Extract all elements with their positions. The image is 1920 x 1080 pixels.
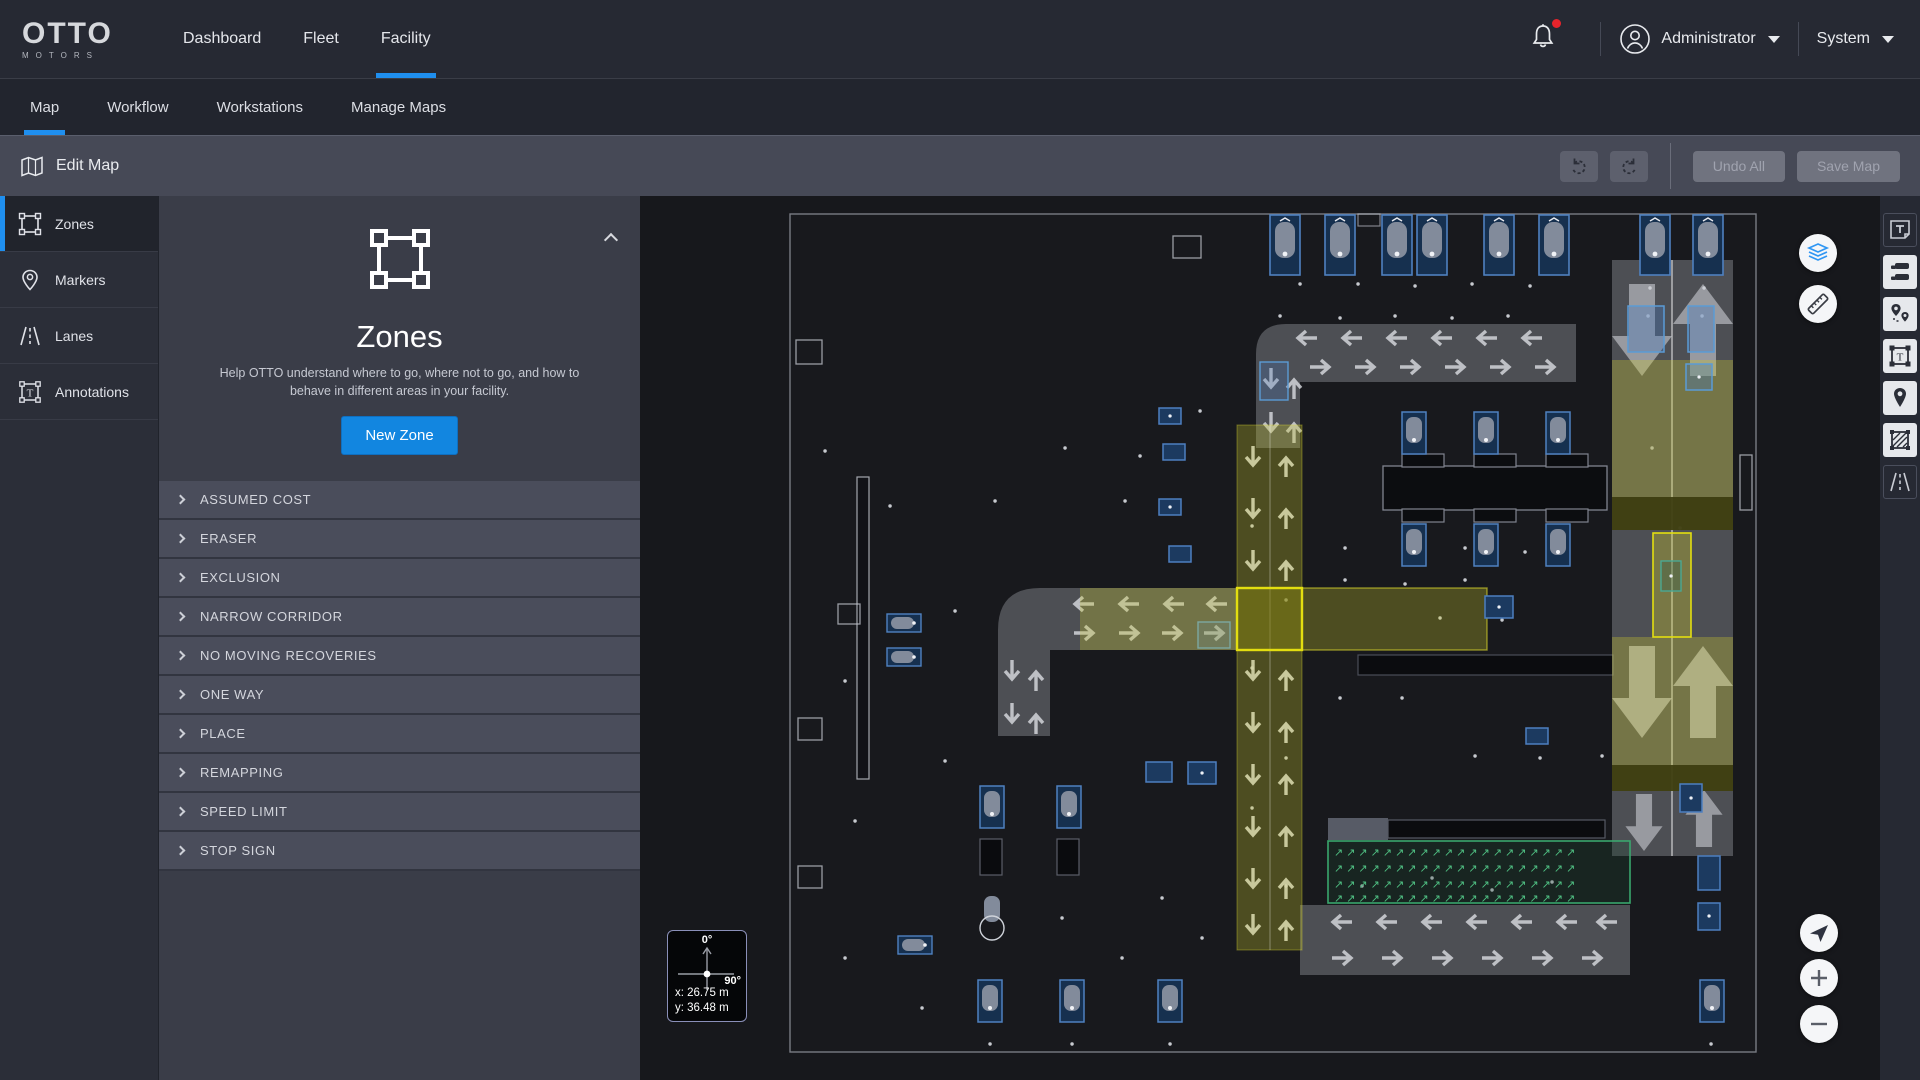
map-edit-toolbar-right: T — [1880, 196, 1920, 1080]
marker-icon — [18, 268, 42, 292]
sidebar-item-markers[interactable]: Markers — [0, 252, 158, 308]
main-nav-item[interactable]: Dashboard — [162, 0, 282, 78]
main-nav-item[interactable]: Facility — [360, 0, 452, 78]
green-zone[interactable]: ↗↗↗↗↗↗↗↗↗↗↗↗↗↗↗↗↗↗↗↗ ↗↗↗↗↗↗↗↗↗↗↗↗↗↗↗↗↗↗↗… — [1328, 841, 1630, 905]
sidebar-item-label: Annotations — [55, 384, 129, 400]
ruler-icon — [1805, 291, 1831, 317]
text-note-tool-button[interactable] — [1883, 213, 1917, 247]
sidebar-item-annotations[interactable]: T Annotations — [0, 364, 158, 420]
zone-type-row[interactable]: ERASER — [159, 520, 640, 559]
minus-icon — [1808, 1013, 1830, 1035]
measure-button[interactable] — [1799, 285, 1837, 323]
logo-text: OTTO — [22, 19, 132, 49]
direction-glyph-row: ↗↗↗↗↗↗↗↗↗↗↗↗↗↗↗↗↗↗↗↗ — [1334, 863, 1578, 875]
notifications-button[interactable] — [1530, 23, 1556, 56]
lanes-icon — [18, 324, 42, 348]
annotation-frame-icon: T — [1887, 343, 1913, 369]
chevron-right-icon — [176, 495, 186, 505]
cursor-y-coordinate: y: 36.48 m — [675, 1001, 729, 1017]
facility-subnav: MapWorkflowWorkstationsManage Maps — [0, 78, 1920, 135]
lanes-tool-button[interactable] — [1883, 465, 1917, 499]
locate-button[interactable] — [1800, 914, 1838, 952]
facility-map-svg[interactable]: ↗↗↗↗↗↗↗↗↗↗↗↗↗↗↗↗↗↗↗↗ ↗↗↗↗↗↗↗↗↗↗↗↗↗↗↗↗↗↗↗… — [640, 196, 1880, 1080]
user-menu[interactable]: Administrator — [1619, 23, 1779, 55]
zoom-in-button[interactable] — [1800, 959, 1838, 997]
chevron-right-icon — [176, 573, 186, 583]
avatar-icon — [1619, 23, 1651, 55]
chevron-right-icon — [176, 807, 186, 817]
subnav-tab[interactable]: Workflow — [83, 79, 192, 135]
undo-all-button[interactable]: Undo All — [1693, 151, 1785, 182]
map-tools-sidebar: Zones Markers Lanes — [0, 196, 159, 1080]
zone-type-row[interactable]: SPEED LIMIT — [159, 793, 640, 832]
zone-type-label: STOP SIGN — [200, 843, 276, 858]
zone-type-row[interactable]: ASSUMED COST — [159, 481, 640, 520]
zone-type-label: ASSUMED COST — [200, 492, 311, 507]
compass-0-label: 0° — [668, 934, 746, 946]
chevron-right-icon — [176, 651, 186, 661]
markers-pair-icon — [1887, 301, 1913, 327]
layers-icon — [1806, 241, 1830, 265]
top-nav-bar: OTTO MOTORS DashboardFleetFacility — [0, 0, 1920, 78]
zone-type-label: PLACE — [200, 726, 246, 741]
save-map-button[interactable]: Save Map — [1797, 151, 1900, 182]
sidebar-item-zones[interactable]: Zones — [0, 196, 158, 252]
direction-glyph-row: ↗↗↗↗↗↗↗↗↗↗↗↗↗↗↗↗↗↗↗↗ — [1334, 879, 1578, 891]
otto-app: OTTO MOTORS DashboardFleetFacility — [0, 0, 1920, 1080]
zone-type-label: REMAPPING — [200, 765, 283, 780]
panel-description: Help OTTO understand where to go, where … — [214, 364, 586, 400]
main-nav-item[interactable]: Fleet — [282, 0, 360, 78]
logo-subtext: MOTORS — [22, 51, 132, 60]
annotations-icon: T — [18, 380, 42, 404]
notification-badge — [1552, 19, 1561, 28]
navigation-arrow-icon — [1807, 921, 1831, 945]
chevron-up-icon — [604, 233, 618, 247]
user-name: Administrator — [1661, 30, 1755, 48]
divider — [1600, 22, 1601, 56]
direction-glyph-row: ↗↗↗↗↗↗↗↗↗↗↗↗↗↗↗↗↗↗↗↗ — [1334, 847, 1578, 859]
topbar-right: Administrator System — [1530, 0, 1920, 78]
zone-type-row[interactable]: PLACE — [159, 715, 640, 754]
chevron-right-icon — [176, 768, 186, 778]
divider — [1798, 22, 1799, 56]
panel-title: Zones — [159, 319, 640, 355]
rack-structure — [1383, 454, 1607, 522]
wall-segment — [857, 477, 869, 779]
zone-hatch-icon — [1887, 427, 1913, 453]
subnav-tab[interactable]: Manage Maps — [327, 79, 470, 135]
sidebar-item-label: Zones — [55, 216, 94, 232]
chevron-right-icon — [176, 729, 186, 739]
redo-button[interactable] — [1610, 151, 1648, 182]
cursor-x-coordinate: x: 26.75 m — [675, 986, 729, 1002]
divider — [1670, 143, 1671, 189]
zone-type-label: SPEED LIMIT — [200, 804, 288, 819]
zone-tool-button[interactable] — [1883, 423, 1917, 457]
plus-icon — [1808, 967, 1830, 989]
zone-type-label: EXCLUSION — [200, 570, 281, 585]
system-menu[interactable]: System — [1817, 30, 1894, 48]
fleet-robots-tool-button[interactable] — [1883, 255, 1917, 289]
subnav-tab[interactable]: Map — [6, 79, 83, 135]
collapse-panel-button[interactable] — [606, 232, 616, 250]
undo-icon — [1569, 156, 1589, 176]
compass-widget: 0° 90° x: 26.75 m y: 36.48 m — [667, 930, 747, 1022]
layers-button[interactable] — [1799, 234, 1837, 272]
undo-button[interactable] — [1560, 151, 1598, 182]
svg-text:T: T — [1897, 352, 1904, 364]
subnav-tab[interactable]: Workstations — [193, 79, 327, 135]
zone-type-row[interactable]: NARROW CORRIDOR — [159, 598, 640, 637]
edit-map-toolbar: Edit Map Undo All Save Map — [0, 135, 1920, 196]
zone-type-label: ERASER — [200, 531, 257, 546]
annotation-frame-tool-button[interactable]: T — [1883, 339, 1917, 373]
edit-map-controls: Undo All Save Map — [1548, 143, 1920, 189]
zone-type-row[interactable]: EXCLUSION — [159, 559, 640, 598]
content: Zones Markers Lanes — [0, 196, 1920, 1080]
zones-large-icon — [367, 226, 433, 292]
map-icon — [20, 156, 44, 177]
zone-type-row[interactable]: ONE WAY — [159, 676, 640, 715]
svg-text:T: T — [27, 387, 34, 399]
system-label: System — [1817, 30, 1870, 48]
facility-map[interactable]: ↗↗↗↗↗↗↗↗↗↗↗↗↗↗↗↗↗↗↗↗ ↗↗↗↗↗↗↗↗↗↗↗↗↗↗↗↗↗↗↗… — [640, 196, 1880, 1080]
zone-type-label: ONE WAY — [200, 687, 264, 702]
sidebar-item-lanes[interactable]: Lanes — [0, 308, 158, 364]
zone-type-label: NARROW CORRIDOR — [200, 609, 343, 624]
chevron-right-icon — [176, 690, 186, 700]
chevron-down-icon — [1882, 36, 1894, 43]
edit-map-title: Edit Map — [20, 156, 119, 177]
lanes-road-icon — [1887, 469, 1913, 495]
chevron-right-icon — [176, 846, 186, 856]
marker-tool-button[interactable] — [1883, 381, 1917, 415]
marker-pin-icon — [1887, 385, 1913, 411]
zone-type-row[interactable]: REMAPPING — [159, 754, 640, 793]
zones-panel-header: Zones Help OTTO understand where to go, … — [159, 196, 640, 481]
zoom-out-button[interactable] — [1800, 1005, 1838, 1043]
redo-icon — [1619, 156, 1639, 176]
sidebar-item-label: Markers — [55, 272, 106, 288]
markers-tool-button[interactable] — [1883, 297, 1917, 331]
robot-docks-top — [1270, 215, 1723, 275]
zone-type-row[interactable]: STOP SIGN — [159, 832, 640, 871]
zone-type-accordion: ASSUMED COST ERASER EXCLUSION NA — [159, 481, 640, 871]
sidebar-item-label: Lanes — [55, 328, 93, 344]
otto-logo[interactable]: OTTO MOTORS — [22, 19, 132, 60]
zones-panel: Zones Help OTTO understand where to go, … — [159, 196, 640, 1080]
zones-icon — [18, 212, 42, 236]
chevron-down-icon — [1768, 36, 1780, 43]
zone-type-label: NO MOVING RECOVERIES — [200, 648, 377, 663]
new-zone-button[interactable]: New Zone — [341, 416, 457, 455]
zone-type-row[interactable]: NO MOVING RECOVERIES — [159, 637, 640, 676]
main-nav: DashboardFleetFacility — [162, 0, 452, 78]
robots-icon — [1887, 259, 1913, 285]
edit-map-label: Edit Map — [56, 157, 119, 175]
chevron-right-icon — [176, 612, 186, 622]
chevron-right-icon — [176, 534, 186, 544]
text-note-icon — [1887, 217, 1913, 243]
direction-glyph-row: ↗↗↗↗↗↗↗↗↗↗↗↗↗↗↗↗↗↗↗↗ — [1334, 893, 1578, 905]
